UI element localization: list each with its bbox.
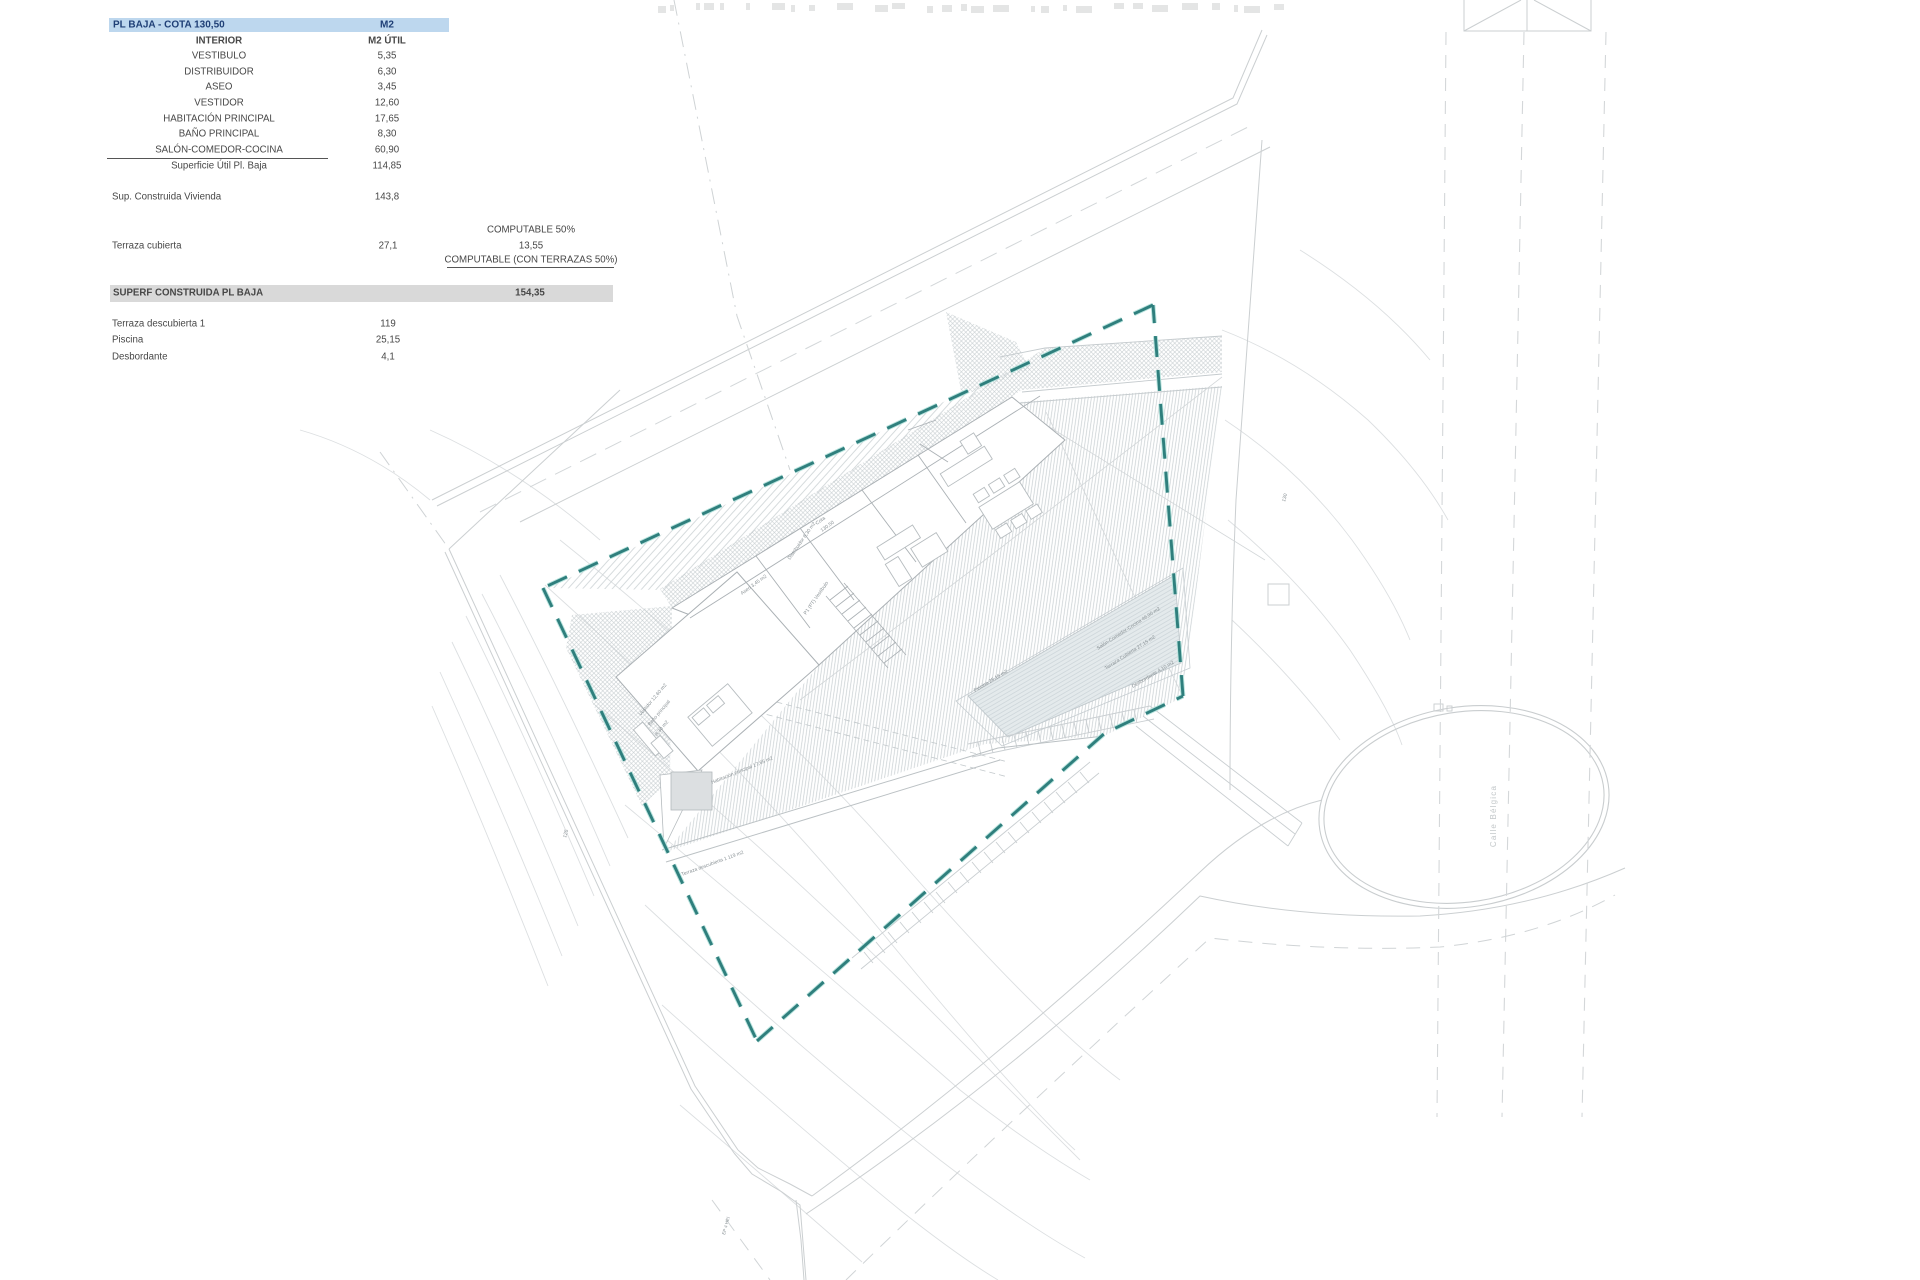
svg-text:Calle Bélgica: Calle Bélgica — [1489, 785, 1498, 847]
svg-text:EP 4 HEI: EP 4 HEI — [721, 1216, 731, 1235]
svg-text:130: 130 — [1281, 493, 1289, 503]
svg-text:Terraza descubierta 1 119 m2: Terraza descubierta 1 119 m2 — [681, 850, 745, 878]
